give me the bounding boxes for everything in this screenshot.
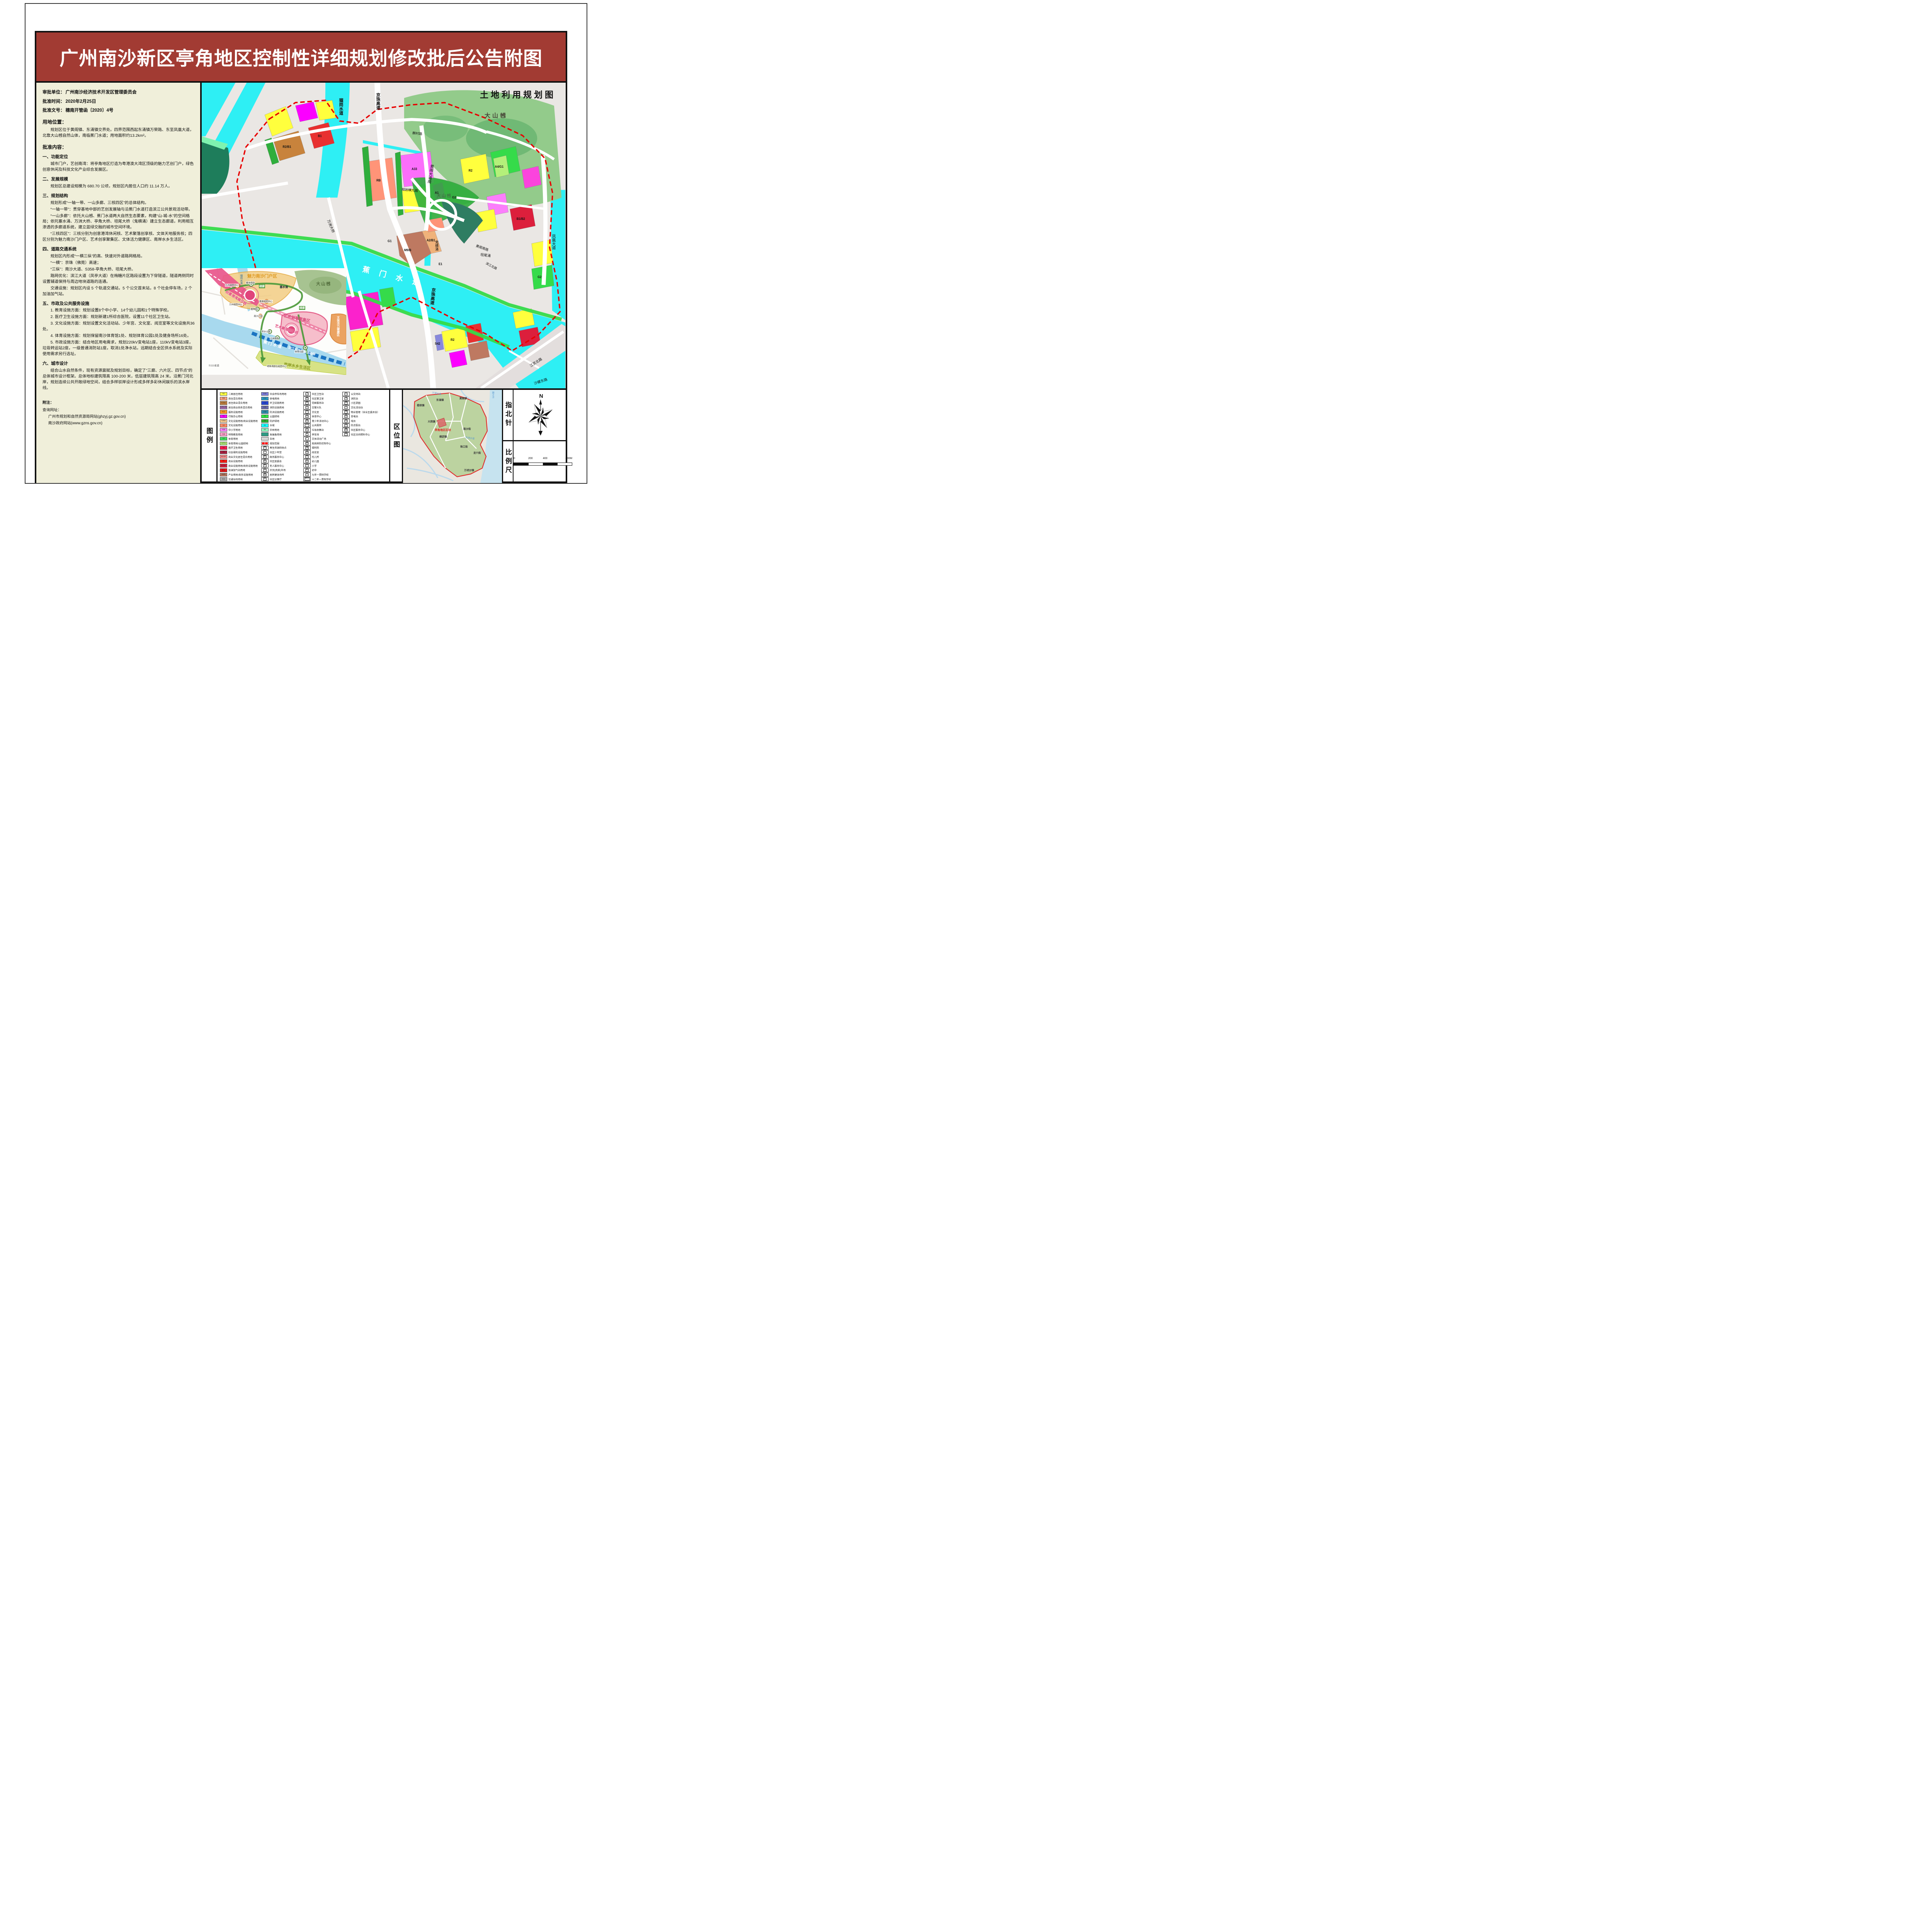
legend-label: 防洪设施用地	[270, 410, 284, 414]
hill-label-mid: 大山乸	[437, 192, 452, 199]
svg-text:RB: RB	[376, 179, 381, 182]
legend-swatch: A2/B1	[220, 419, 227, 423]
inset-s111-label: S111省道	[209, 363, 219, 367]
legend-label: 社区服务中心	[351, 428, 365, 432]
legend-label: 农林用地	[270, 428, 279, 432]
legend-label: 幼儿园	[312, 459, 319, 463]
legend-label: 交警大队	[312, 406, 321, 409]
legend-swatch: A5	[220, 446, 227, 450]
creek-gui-label: 鬼横涌	[434, 240, 439, 251]
legend-icon: 文	[303, 410, 311, 414]
legend-icon: 泵	[342, 423, 350, 428]
road-fenghuang-label: 凤凰大道	[550, 234, 556, 250]
note-line: 广州市规划和自然资源局网站(ghzyj.gz.gov.cn)	[43, 414, 195, 420]
legend-swatch: M9/B	[220, 473, 227, 477]
svg-text:B1/B2: B1/B2	[517, 217, 526, 221]
legend-icon: 文	[342, 405, 350, 410]
river-label-liugang: 骝岗水道	[338, 98, 344, 115]
legend-icon: 照	[342, 432, 350, 437]
section-paragraph: 5. 市政设施方面：结合地区用电需求，规划220kV变电站1座，110kV变电站…	[43, 340, 195, 357]
section-paragraph: 2. 医疗卫生设施方面：规划新建1所综合医院，设置11个社区卫生站。	[43, 315, 195, 320]
svg-text:R2: R2	[451, 338, 455, 342]
legend-item: E1水域	[261, 423, 303, 428]
legend-label: 公园绿地	[270, 415, 279, 418]
legend-swatch: R22	[220, 410, 227, 414]
legend-label: 社区议事厅	[270, 478, 282, 481]
legend-item: E2农林用地	[261, 428, 303, 432]
scale-tick: 800M	[565, 457, 572, 460]
section-paragraph: 3. 文化设施方面：规划设置文化活动站、少年宫、文化室、阅览室等文化设施共36处…	[43, 321, 195, 333]
legend-item: R22服务设施用地	[220, 410, 260, 414]
note-line: 查询网址：	[43, 408, 195, 413]
poster-frame: 广州南沙新区亭角地区控制性详细规划修改批后公告附图 审批单位：广州南沙经济技术开…	[35, 31, 567, 483]
legend-label: 消防设施用地	[270, 406, 284, 409]
section-paragraph: “一山多廊”：依托大山乸、蕉门水道两大自然生态要素，构建“山-城-水”的空间格局…	[43, 214, 195, 231]
legend-swatch: A4/G1	[220, 442, 227, 446]
legend-item: M9/B产业用地/商务设施用地	[220, 473, 260, 477]
legend-label: 加油加气站用地	[228, 468, 245, 472]
legend-item: 幼幼儿园	[303, 459, 342, 464]
legend-label: 医疗卫生用地	[228, 446, 243, 449]
legend-swatch: U12	[261, 397, 269, 401]
legend-label: 社区卫生站	[312, 392, 324, 396]
section-paragraph: 路网优化：滨江大道（凤亭大道）在梅糖片区路段设置为下穿隧道，隧道两侧同时设置辅道…	[43, 274, 195, 285]
legend-icon: 戏	[342, 419, 350, 423]
legend-item: B1商业设施用地	[220, 459, 260, 464]
legend-item: 警社区警卫室	[303, 396, 342, 401]
legend-swatch: U32	[261, 410, 269, 414]
inset-node-label: 万州组团中心	[229, 303, 243, 306]
legend-item: U22环卫设施用地	[261, 401, 303, 405]
inset-node-label: 黄阁组团中心	[259, 300, 273, 303]
legend-icon: 初	[303, 468, 311, 473]
legend-icon: 服	[342, 428, 350, 432]
legend-item: 九九年一贯制学校	[303, 473, 342, 477]
legend-item: 文文化活动站	[342, 405, 388, 410]
legend-swatch: G2	[261, 419, 269, 423]
approval-line: 批准文号：穗南开管函〔2020〕4号	[43, 107, 195, 114]
inset-node-label: 明珠湾居住组团中心	[267, 365, 287, 368]
legend-panel-label: 图例	[202, 390, 218, 483]
section-paragraph: “三纵”：南沙大道、S358-亭角大桥、坦尾大桥。	[43, 267, 195, 273]
svg-text:M9/B: M9/B	[404, 248, 412, 252]
legend-swatch: A6	[220, 451, 227, 454]
legend-item: G1公园绿地	[261, 414, 303, 419]
legend-swatch: A4	[220, 437, 227, 441]
notes: 附注： 查询网址：广州市规划和自然资源局网站(ghzyj.gz.gov.cn)南…	[43, 400, 195, 426]
approval-info: 审批单位：广州南沙经济技术开发区管理委员会批准时间：2020年2月25日批准文号…	[43, 89, 195, 114]
town-label: 南沙街	[463, 427, 471, 430]
section-paragraph: “三核四区”：三核分别为创意港湾休闲核、艺术聚落创享核、文体天地服务核；四区分别…	[43, 231, 195, 243]
legend-item: 服社区服务中心	[342, 428, 388, 432]
legend-item: 政政务服务中心	[261, 454, 303, 459]
svg-text:R2/B1: R2/B1	[283, 145, 292, 148]
legend-icon: 九	[303, 473, 311, 477]
legend-icon: 托	[303, 455, 311, 459]
section-paragraph: 交通设施：规划区内设 5 个轨道交通站，5 个公交首末站，8 个社会停车场，2 …	[43, 286, 195, 298]
legend-item: 十二十二年一贯制学校	[303, 477, 342, 481]
town-label: 黄阁镇	[459, 396, 467, 400]
legend-item: 福福利院	[303, 446, 342, 450]
legend-item: 阅阅览室	[303, 450, 342, 455]
legend-swatch: R2	[220, 392, 227, 396]
section-paragraph: 结合山水自然条件，现有资源禀赋及规划目标，确定了”三廊、六片区、四节点”的总体城…	[43, 368, 195, 391]
legend-label: 初中	[312, 468, 316, 472]
legend-item: S41交通站场用地	[220, 477, 260, 481]
svg-text:S42: S42	[435, 342, 440, 345]
note-line: 南沙政府网站(www.gzns.gov.cn)	[43, 421, 195, 426]
legend-label: 环卫设施用地	[270, 401, 284, 405]
legend-item: A4/G1体育用地/公园绿地	[220, 441, 260, 446]
town-label: 东涌镇	[436, 398, 444, 401]
legend-item: S42社会停车场用地	[261, 392, 303, 396]
section-title: 六、城市设计	[43, 361, 195, 367]
legend-label: 商业设施用地/商务设施用地	[228, 464, 258, 468]
legend-icon: 再	[261, 446, 269, 450]
scale-tick: 400	[543, 457, 548, 460]
approval-line: 审批单位：广州南沙经济技术开发区管理委员会	[43, 89, 195, 96]
legend-swatch: U31	[261, 406, 269, 410]
legend-icon: 警	[303, 396, 311, 401]
legend-swatch: A2	[220, 423, 227, 427]
legend-label: 特殊教育用地	[228, 433, 243, 436]
town-label: 万顷沙镇	[464, 468, 474, 472]
legend-item: U12供电用地	[261, 396, 303, 401]
legend-item: B/A/R商业文化居住混合用地	[220, 454, 260, 459]
town-label: 大岗镇	[428, 419, 435, 423]
legend-label: 居住商业混合用地	[228, 401, 248, 405]
legend-label: 小学	[312, 464, 316, 468]
legend-label: 消防站	[351, 397, 358, 400]
legend-label: 再生资源回收点	[270, 446, 286, 449]
legend-item: 白地	[261, 437, 303, 441]
legend-item: 健居民健身场所	[261, 473, 303, 477]
water-label: 狮子洋	[491, 391, 495, 398]
legend-item: R2/B1/B2居住商业商务混合用地	[220, 405, 260, 410]
legend-label: 停车场	[312, 433, 319, 436]
legend-label: 文化设施用地/商业设施用地	[228, 419, 258, 423]
inset-corridor-label-1: 绿廊	[259, 284, 265, 288]
inset-node-label: 滨水公园	[261, 330, 270, 333]
legend-label: 体育用地	[228, 437, 238, 440]
inset-node-label: 江岸剧场	[270, 337, 279, 340]
legend-icon: 物	[342, 410, 350, 414]
highlight-label: 亭角地区区块	[435, 428, 451, 432]
town-label: 珠江街	[460, 444, 468, 448]
legend-icon: 居	[261, 459, 269, 463]
legend-label: 发展备用地	[270, 433, 282, 436]
legend-item: 物物业管理（含业主委员会）	[342, 410, 388, 414]
map-title: 土地利用规划图	[480, 88, 556, 100]
legend-icon: 卫	[303, 392, 311, 396]
legend-icon: 小	[303, 464, 311, 468]
legend-swatch: G1	[261, 415, 269, 418]
legend-icon: 变	[342, 414, 350, 418]
town-label: 横沥镇	[439, 434, 447, 438]
legend-label: 白地	[270, 437, 274, 440]
legend-item: A2/B1文化设施用地/商业设施用地	[220, 419, 260, 423]
legend-item: R2/B1居住商业混合用地	[220, 401, 260, 405]
legend-item: 照社区日间照料中心	[342, 432, 388, 437]
scalebar-panel-label: 比例尺	[503, 449, 513, 475]
svg-text:R2: R2	[469, 169, 473, 172]
legend-label: 小区游园	[351, 401, 361, 405]
legend-icon: 疾	[303, 441, 311, 446]
legend-label: 社会停车场用地	[270, 392, 286, 396]
legend-label: 体育用地/公园绿地	[228, 442, 248, 445]
legend-label: 垃圾收集站	[312, 428, 324, 432]
legend-label: 社区居委会	[270, 459, 282, 463]
legend-icon: 党	[303, 401, 311, 405]
legend-item: 发展备用地	[261, 432, 303, 437]
legend-item: B41加油加气站用地	[220, 468, 260, 473]
land-use-map: R2 RB A33 A1 G2 G1 E1 M9/B A2/B1 B1/B2 S…	[202, 83, 566, 390]
legend-item: U31消防设施用地	[261, 405, 303, 410]
legend-swatch: A34	[220, 432, 227, 436]
legend-item: 变变电站	[342, 414, 388, 419]
legend-label: 产业用地/商务设施用地	[228, 473, 253, 476]
legend-icon: 福	[303, 446, 311, 450]
legend-label: 九年一贯制学校	[312, 473, 328, 476]
legend-item: RB商住混合用地	[220, 396, 260, 401]
legend-label: 文化活动站	[351, 406, 363, 409]
svg-text:G1: G1	[388, 239, 392, 243]
legend-icon: 青	[303, 419, 311, 423]
legend-item: 居社区居委会	[261, 459, 303, 464]
scale-tick: 0	[514, 457, 515, 460]
structure-plan-inset: 艺创发展轴 魅力南沙门户区 大山乸 艺术创享聚集区 文体活力健康区 南岸水乡生活…	[202, 268, 346, 375]
legend-swatch: A1	[220, 415, 227, 418]
legend-item: 规划范围	[261, 441, 303, 446]
legend-swatch: E2	[261, 428, 269, 432]
section-paragraph: 4. 体育设施方面：规划保留南沙体育馆1处、规划体育公园1处及健身场所16处。	[43, 333, 195, 339]
legend-item: A33中小学用地	[220, 428, 260, 432]
legend-item: 游小区游园	[342, 401, 388, 405]
legend-icon: ♀♂	[303, 423, 311, 428]
town-label: 榄核镇	[417, 403, 425, 407]
legend-icon: 垃	[303, 428, 311, 432]
section-paragraph: 规划形成“一轴一带、一山多廊、三核四区”的总体结构。	[43, 201, 195, 206]
svg-text:B1: B1	[318, 134, 322, 138]
legend-label: 防护绿地	[270, 419, 279, 423]
legend-item: A2文化设施用地	[220, 423, 260, 428]
poster: 广州南沙新区亭角地区控制性详细规划修改批后公告附图 审批单位：广州南沙经济技术开…	[0, 0, 596, 485]
legend-label: 商业设施用地	[228, 459, 243, 463]
content-heading: 批准内容：	[43, 144, 195, 151]
region-location-map: 东涌镇 榄核镇 大岗镇 黄阁镇 南沙街 横沥镇 珠江街 龙穴街 万顷沙镇 沙湾水…	[403, 390, 502, 483]
section-title: 四、道路交通系统	[43, 247, 195, 253]
legend-label: 农贸(肉菜)市场	[270, 468, 286, 472]
legend-item: 体体育中心	[303, 414, 342, 419]
legend-item: ♀♂公共厕所	[303, 423, 342, 428]
svg-text:G2: G2	[452, 196, 456, 199]
legend-icon: 交	[303, 405, 311, 410]
section-paragraph: 1. 教育设施方面：规划设置8个中小学、14个幼儿园和1个特殊学校。	[43, 308, 195, 314]
legend-item: 青青少年活动中心	[303, 419, 342, 423]
legend-label: 物业管理（含业主委员会）	[351, 410, 379, 414]
svg-text:G2: G2	[537, 275, 542, 279]
legend-icon: 阅	[303, 450, 311, 454]
legend-label: 中小学用地	[228, 428, 240, 432]
legend-label: 社区日间照料中心	[351, 433, 370, 436]
section-paragraph: 城市门户，艺创南湾：将亭角地区打造为粤港澳大湾区顶级的魅力艺创门户，绿色创意休闲…	[43, 162, 195, 173]
legend-item: 疾疾病预防控制中心	[303, 441, 342, 446]
legend-item: 广文体活动广场	[303, 437, 342, 441]
legend-item: A5医疗卫生用地	[220, 446, 260, 450]
legend-item: 卫社区卫生站	[303, 392, 342, 396]
legend-swatch: B/A/R	[220, 455, 227, 459]
title-banner: 广州南沙新区亭角地区控制性详细规划修改批后公告附图	[36, 32, 566, 81]
expressway-label-top: 京珠高速	[375, 93, 381, 110]
legend-label: 社区警卫室	[312, 397, 324, 400]
legend-item: 文文化室	[303, 410, 342, 414]
legend-swatch: B1/B2	[220, 464, 227, 468]
legend-icon: 健	[261, 473, 269, 477]
region-map-panel-label: 区位图	[389, 390, 403, 483]
legend-item: A34特殊教育用地	[220, 432, 260, 437]
legend-label: 二类居住用地	[228, 392, 243, 396]
legend-swatch	[261, 437, 269, 441]
legend-icon: 议	[261, 477, 269, 481]
section-paragraph: “一横”：京珠（佛莞）高速；	[43, 260, 195, 266]
legend-label: 变电站	[351, 415, 358, 418]
legend-label: 水域	[270, 423, 274, 427]
legend-label: 十二年一贯制学校	[312, 478, 331, 481]
inset-corridor-label-2: 绿廊	[299, 306, 305, 310]
legend-icon: 幼	[303, 459, 311, 463]
section-paragraph: “一轴一带”：贯穿基地中部的艺创发展轴与沿蕉门水道打造滨江公共景观活动带。	[43, 207, 195, 213]
legend-icon: 消	[342, 396, 350, 401]
legend-icon: 游	[342, 401, 350, 405]
legend-label: 阅览室	[312, 451, 319, 454]
location-heading: 用地位置：	[43, 119, 195, 126]
legend-item: A6社会福利设施用地	[220, 450, 260, 455]
scale-tick: 200	[528, 457, 533, 460]
legend-item: 菜农贸(肉菜)市场	[261, 468, 303, 473]
legend-item: 党党群服务站	[303, 401, 342, 405]
legend-label: 行政办公用地	[228, 415, 243, 418]
legend-icon: 菜	[261, 468, 269, 473]
section-title: 一、功能定位	[43, 154, 195, 160]
location-text: 规划区位于黄阁镇、东涌镇交界处。四界范围西起东涌镇万荣路、东至凤凰大道，北靠大山…	[43, 128, 195, 139]
compass-panel: 指北针 N	[503, 390, 566, 441]
legend-boundary-swatch	[261, 442, 269, 446]
legend-icon: P	[303, 432, 311, 437]
legend-icon: 政	[261, 455, 269, 459]
legend-item: A4体育用地	[220, 437, 260, 441]
section-paragraph: 规划区内形成“一横三纵”的高、快速对外道路网格局。	[43, 254, 195, 260]
legend-swatch: S42	[261, 392, 269, 396]
notes-heading: 附注：	[43, 400, 195, 406]
legend-swatch	[261, 432, 269, 436]
approval-line: 批准时间：2020年2月25日	[43, 99, 195, 105]
approval-sections: 一、功能定位城市门户，艺创南湾：将亭角地区打造为粤港澳大湾区顶级的魅力艺创门户，…	[43, 154, 195, 391]
legend-label: 居民健身场所	[270, 473, 284, 476]
scalebar-panel: 比例尺 0 200 400 800M	[503, 441, 566, 483]
north-letter: N	[539, 393, 543, 399]
legend-icon: 十二	[303, 477, 311, 481]
legend-label: 文化室	[312, 410, 319, 414]
legend-swatch: B1	[220, 459, 227, 463]
legend-item: 垃垃圾收集站	[303, 428, 342, 432]
inset-node-label: 都市农田	[246, 281, 255, 284]
legend-label: 福利院	[312, 446, 319, 449]
legend-item: 老老人服务中心	[261, 463, 303, 468]
legend-label: 商住混合用地	[228, 397, 243, 400]
legend-item: 托托儿所	[303, 454, 342, 459]
legend-item: 议社区议事厅	[261, 477, 303, 481]
legend-label: 党群服务站	[312, 401, 324, 405]
legend-label: 规划范围	[270, 442, 279, 445]
legend-label: 老人服务中心	[270, 464, 284, 468]
legend-label: 公共厕所	[312, 423, 321, 427]
inset-node-label: 南沙之窗	[253, 315, 263, 318]
legend-label: 戏台	[351, 419, 355, 423]
scale-bar: 0 200 400 800M	[514, 457, 572, 467]
legend-label: 青少年活动中心	[312, 419, 328, 423]
svg-text:A33: A33	[412, 167, 417, 171]
inset-node-label: 植物园	[250, 308, 258, 311]
svg-text:A4/G1: A4/G1	[495, 165, 504, 168]
legend-item: A1行政办公用地	[220, 414, 260, 419]
legend-label: 防涝泵站	[351, 423, 361, 427]
legend-label: 疾病预防控制中心	[312, 442, 331, 445]
section-title: 五、市政及公共服务设施	[43, 301, 195, 307]
legend-label: 体育中心	[312, 415, 321, 418]
legend-item: 再再生资源回收点	[261, 446, 303, 450]
legend-icon: 车	[342, 392, 350, 396]
legend-item: U32防洪设施用地	[261, 410, 303, 414]
compass-panel-label: 指北针	[503, 401, 513, 428]
legend-label: 文化设施用地	[228, 423, 243, 427]
legend-label: 托儿所	[312, 455, 319, 459]
legend-item: 少社区少年宫	[261, 450, 303, 455]
legend-swatch: B41	[220, 468, 227, 472]
section-title: 二、发展规模	[43, 177, 195, 183]
legend-icon: 老	[261, 464, 269, 468]
scale-bar-segments	[514, 463, 572, 466]
inset-culture-zone-label: 文体活力健康区	[336, 316, 340, 337]
legend-item: 消消防站	[342, 396, 388, 401]
inset-node-label: 体育公园	[294, 350, 304, 353]
legend-item: 泵防涝泵站	[342, 423, 388, 428]
legend: R2二类居住用地RB商住混合用地R2/B1居住商业混合用地R2/B1/B2居住商…	[218, 390, 389, 483]
legend-label: 社区少年宫	[270, 451, 282, 454]
legend-label: 政务服务中心	[270, 455, 284, 459]
inset-node-label: 万州组团中心	[225, 284, 239, 287]
hill-label-top: 大山乸	[485, 111, 508, 119]
legend-label: 社会福利设施用地	[228, 451, 248, 454]
legend-icon: 广	[303, 437, 311, 441]
legend-item: G2防护绿地	[261, 419, 303, 423]
legend-swatch: U22	[261, 401, 269, 405]
legend-icon: 少	[261, 450, 269, 454]
compass-rose: N	[514, 391, 568, 439]
notes-list: 查询网址：广州市规划和自然资源局网站(ghzyj.gz.gov.cn)南沙政府网…	[43, 408, 195, 427]
legend-item: R2二类居住用地	[220, 392, 260, 396]
legend-swatch: E1	[261, 423, 269, 427]
legend-label: 服务设施用地	[228, 410, 243, 414]
legend-label: 商业文化居住混合用地	[228, 455, 252, 459]
legend-icon: 体	[303, 414, 311, 418]
road-qicun-label: 麒村路	[412, 131, 423, 136]
legend-swatch: S41	[220, 477, 227, 481]
town-label: 龙穴街	[473, 451, 481, 454]
legend-label: 供电用地	[270, 397, 279, 400]
info-panel: 审批单位：广州南沙经济技术开发区管理委员会批准时间：2020年2月25日批准文号…	[36, 83, 202, 483]
legend-item: B1/B2商业设施用地/商务设施用地	[220, 463, 260, 468]
legend-label: 公交场站	[351, 392, 361, 396]
